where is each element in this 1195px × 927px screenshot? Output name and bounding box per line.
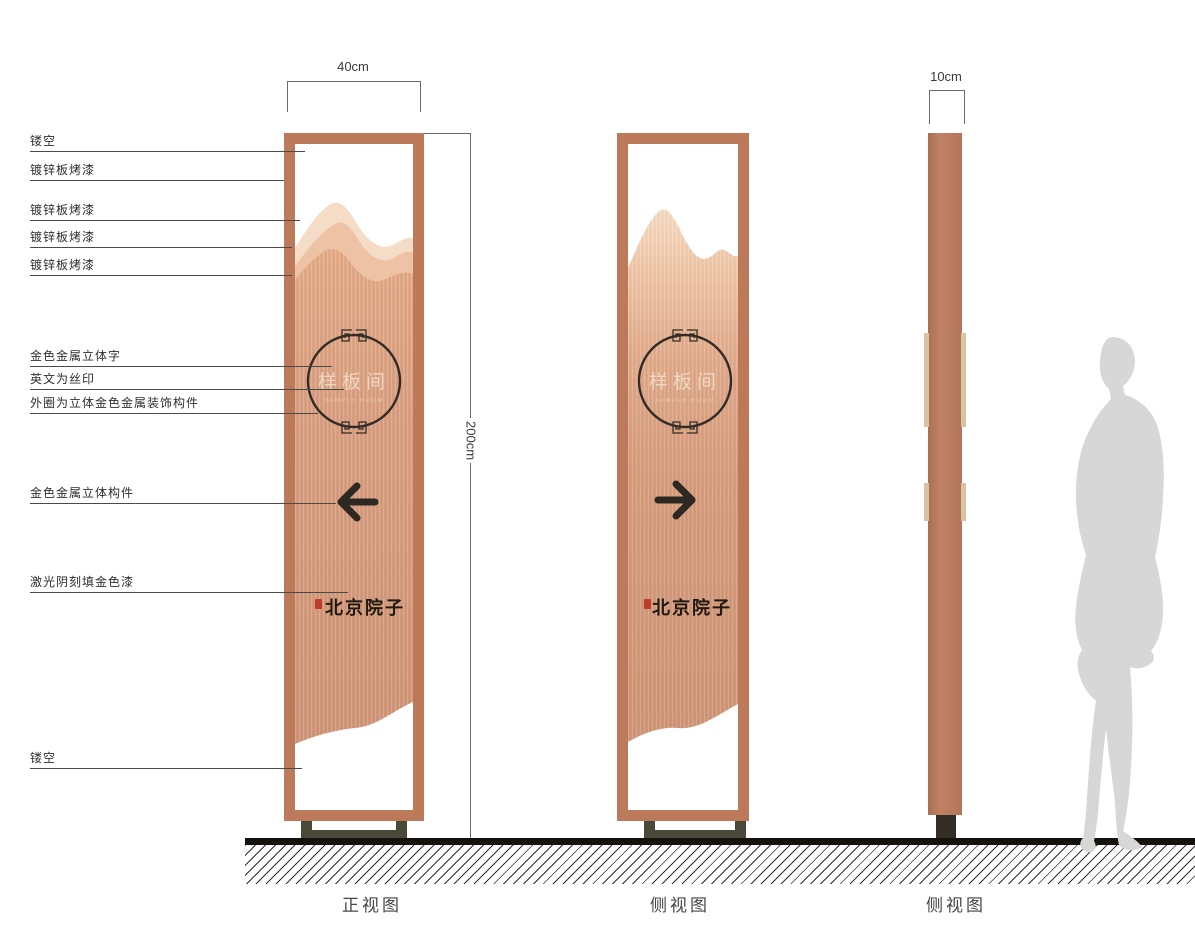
edge-panel-strip xyxy=(961,333,966,427)
pillar-thin-side-view xyxy=(928,133,962,815)
pillar-side-graphic: 样板间 SAMPLE ROOM 北京院子 xyxy=(628,144,738,810)
dimension-height-line xyxy=(470,133,471,838)
annotation-cutout-top: 镂空 xyxy=(30,134,305,152)
human-silhouette xyxy=(1045,333,1177,857)
leader-line xyxy=(30,503,336,504)
caption-front-view: 正视图 xyxy=(342,891,402,916)
seal-icon xyxy=(315,599,322,609)
pillar-base-middle xyxy=(644,820,746,838)
leader-line xyxy=(30,389,344,390)
annotation-galvanized-4: 镀锌板烤漆 xyxy=(30,258,292,276)
leader-line xyxy=(30,768,302,769)
brand-calligraphy: 北京院子 xyxy=(325,597,405,618)
edge-panel-strip xyxy=(924,333,929,427)
leader-line xyxy=(30,366,332,367)
annotation-galvanized-1: 镀锌板烤漆 xyxy=(30,163,284,181)
annotation-cutout-bottom: 镂空 xyxy=(30,751,302,769)
design-drawing-canvas: 镂空 镀锌板烤漆 镀锌板烤漆 镀锌板烤漆 镀锌板烤漆 金色金属立体字 英文为丝印… xyxy=(0,0,1195,927)
pillar-front-graphic: 样板间 SAMPLE ROOM 北京院子 xyxy=(295,144,413,810)
brand-calligraphy: 北京院子 xyxy=(652,597,732,618)
pillar-front-view: 样板间 SAMPLE ROOM 北京院子 xyxy=(284,133,424,821)
caption-side-view-1: 侧视图 xyxy=(650,891,710,916)
annotation-galvanized-2: 镀锌板烤漆 xyxy=(30,203,300,221)
leader-line xyxy=(30,180,284,181)
annotation-galvanized-3: 镀锌板烤漆 xyxy=(30,230,292,248)
edge-panel-strip xyxy=(924,483,929,521)
leader-line xyxy=(30,151,305,152)
pillar-base-thin xyxy=(936,815,956,838)
english-subtext: SAMPLE ROOM xyxy=(324,398,384,404)
dimension-bracket-front xyxy=(287,81,421,112)
dimension-height: 200cm xyxy=(464,418,479,463)
annotation-english-silkscreen: 英文为丝印 xyxy=(30,372,344,390)
seal-icon xyxy=(644,599,651,609)
leader-line xyxy=(30,247,292,248)
leader-line xyxy=(30,220,300,221)
dimension-extension-line xyxy=(424,133,470,134)
leader-line xyxy=(30,592,348,593)
annotation-gold-letters: 金色金属立体字 xyxy=(30,349,332,367)
dimension-bracket-side xyxy=(929,90,965,124)
pillar-side-view: 样板间 SAMPLE ROOM 北京院子 xyxy=(617,133,749,821)
panel-body-texture xyxy=(628,209,738,742)
leader-line xyxy=(30,275,292,276)
circle-label: 样板间 xyxy=(649,371,721,393)
pillar-base-front xyxy=(301,820,407,838)
english-subtext: SAMPLE ROOM xyxy=(655,398,715,404)
leader-line xyxy=(30,413,318,414)
annotation-laser-engraving: 激光阴刻填金色漆 xyxy=(30,575,348,593)
caption-side-view-2: 侧视图 xyxy=(926,891,986,916)
edge-panel-strip xyxy=(961,483,966,521)
dimension-front-width: 40cm xyxy=(337,59,369,74)
dimension-side-width: 10cm xyxy=(930,69,962,84)
annotation-outer-ring: 外圈为立体金色金属装饰构件 xyxy=(30,396,318,414)
annotation-gold-component: 金色金属立体构件 xyxy=(30,486,336,504)
